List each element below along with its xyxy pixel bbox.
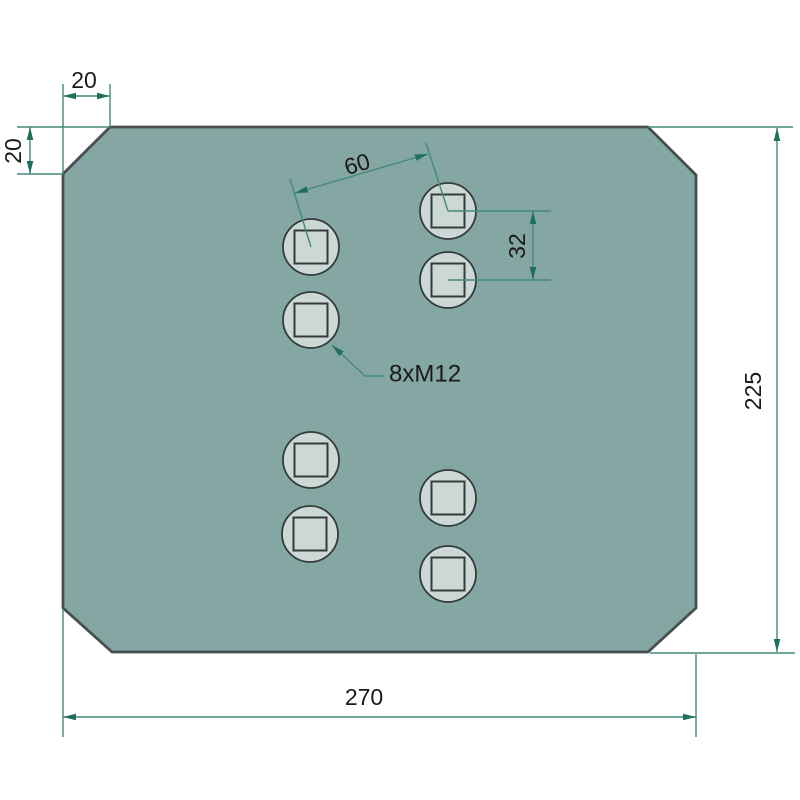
callout-label-hole-spec: 8xM12 — [389, 361, 461, 388]
hole-square — [432, 482, 465, 515]
technical-drawing: 20 20 60 32 225 270 8xM12 — [0, 0, 800, 800]
drawing-canvas: 20 20 60 32 225 270 8xM12 — [0, 0, 800, 800]
dim-label-chamfer-height: 20 — [0, 138, 26, 164]
hole — [282, 506, 338, 562]
hole — [420, 470, 476, 526]
dim-label-plate-width: 270 — [345, 684, 383, 710]
hole-square — [295, 304, 328, 337]
dim-label-hole-spacing-vertical: 32 — [504, 233, 530, 259]
hole-square — [295, 444, 328, 477]
hole — [420, 546, 476, 602]
hole — [283, 292, 339, 348]
dim-label-plate-height: 225 — [740, 372, 766, 410]
hole — [283, 432, 339, 488]
hole-square — [294, 518, 327, 551]
dim-label-chamfer-width: 20 — [71, 67, 97, 93]
plate-outline — [63, 127, 696, 652]
hole-square — [432, 558, 465, 591]
